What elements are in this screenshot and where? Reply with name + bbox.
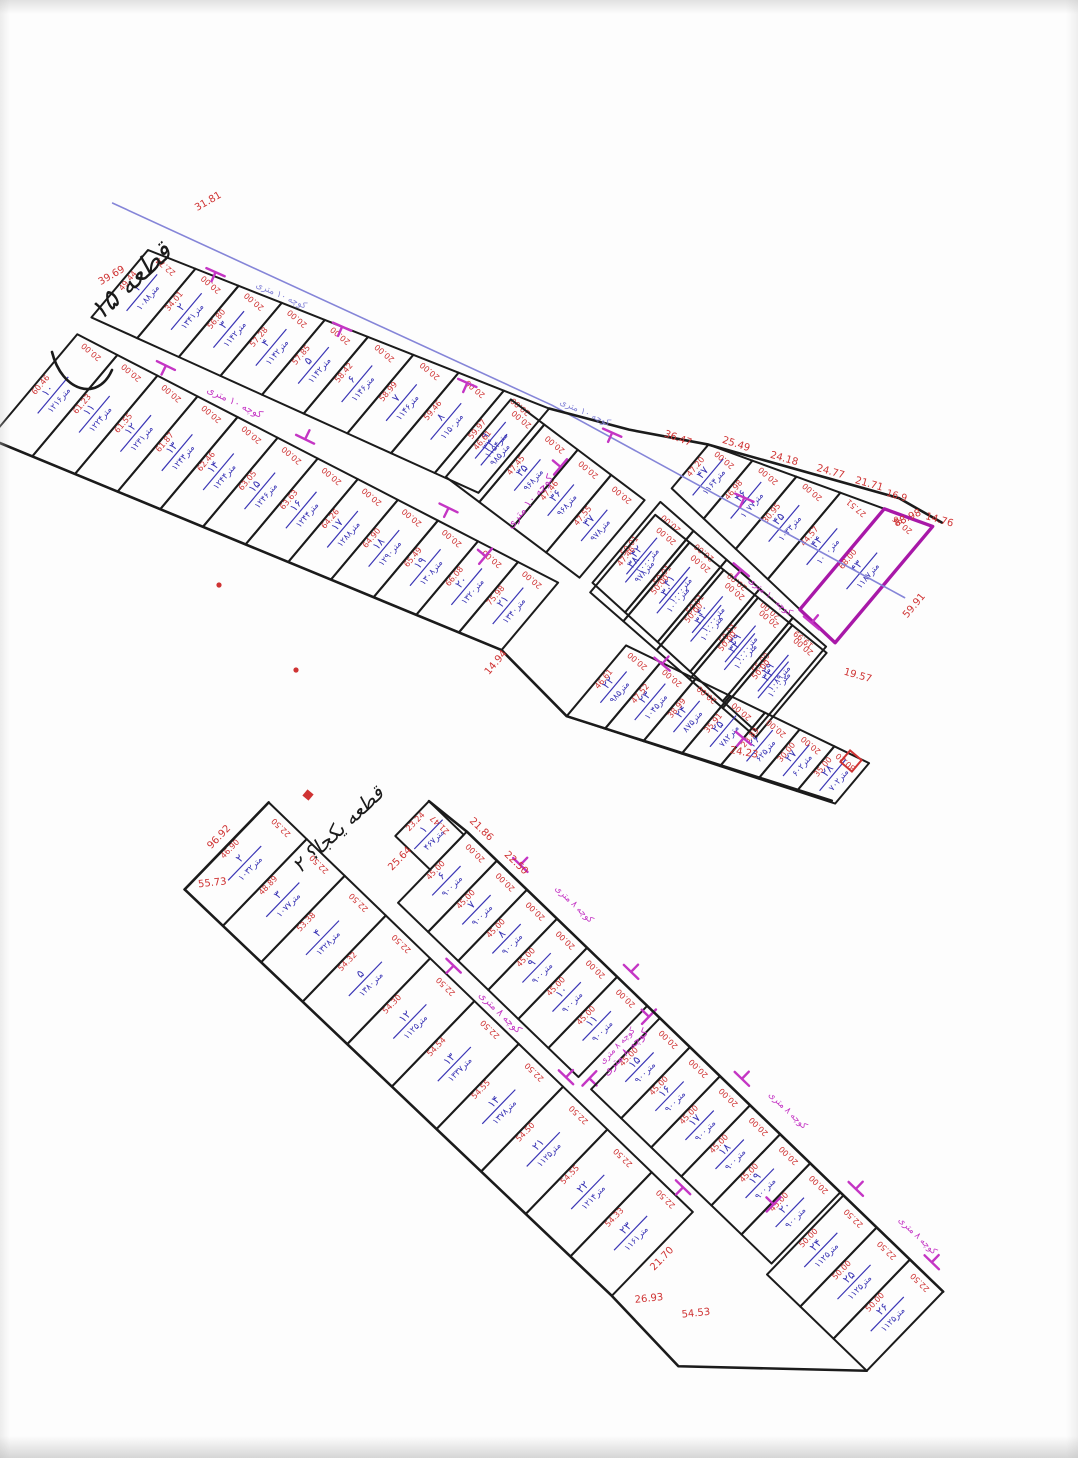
red-dot-marker [293,667,298,672]
plan-svg: ۱۱۰۸۸متر22.7449.44۲۱۳۴۱متر20.0034.01۳۱۱۴… [0,0,1078,1458]
red-dot-marker [216,582,221,587]
scanned-cadastral-plan: { "document": { "type": "cadastral-subdi… [0,0,1078,1458]
